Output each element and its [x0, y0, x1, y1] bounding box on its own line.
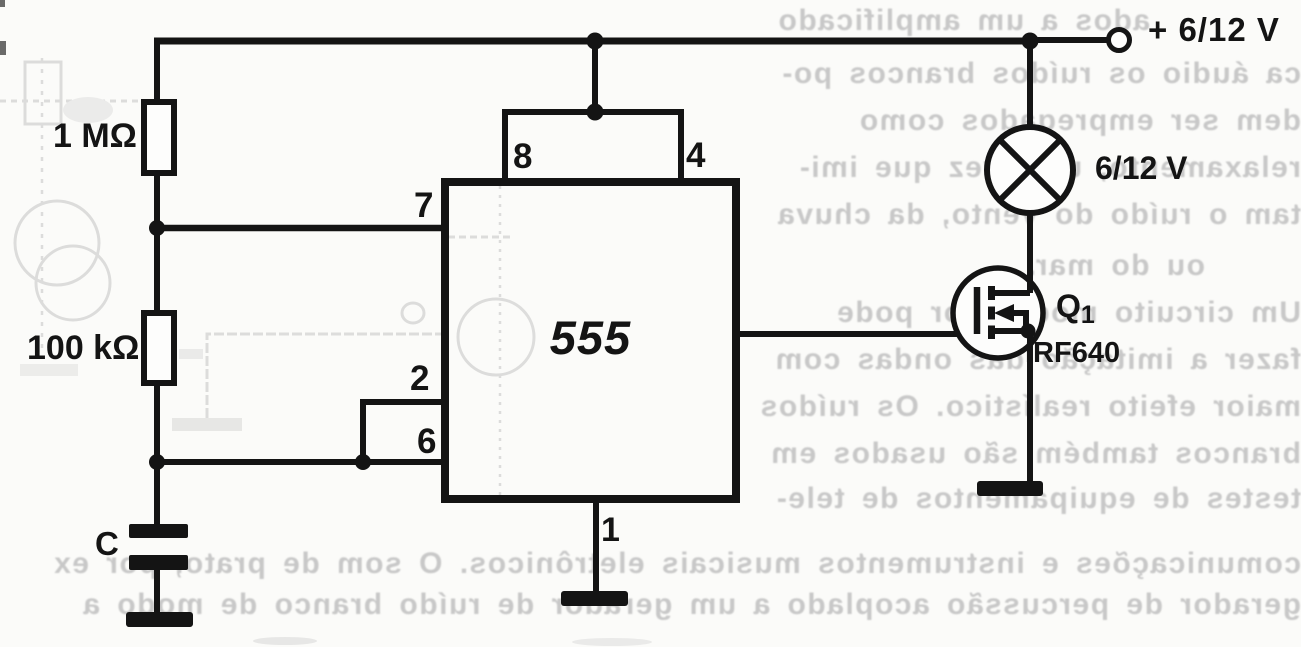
capacitor-plate: [129, 524, 188, 538]
supply-terminal-circle: [1109, 30, 1130, 51]
transistor-part-label: IRF640: [1025, 339, 1120, 368]
lamp-voltage-label: 6/12 V: [1095, 152, 1188, 184]
pin-4-label: 4: [686, 138, 705, 173]
ground-symbol-capacitor: [126, 612, 193, 627]
junction-dot: [587, 104, 604, 121]
pin-6-label: 6: [417, 424, 436, 459]
resistor-100kohm-symbol: [144, 313, 174, 383]
bleed-blob: [572, 638, 652, 646]
junction-dot: [149, 220, 165, 236]
transistor-ref-label: Q1: [1056, 290, 1095, 328]
bleed-blob: [253, 637, 317, 645]
lamp-symbol: [987, 127, 1073, 213]
capacitor-plate: [129, 555, 188, 570]
pin-1-label: 1: [601, 513, 620, 547]
ground-symbol-mosfet: [977, 481, 1043, 496]
page-edge-mark: [0, 0, 5, 7]
capacitor-label: C: [95, 527, 119, 560]
capacitor-symbol: [129, 524, 188, 570]
pin-8-label: 8: [513, 139, 532, 174]
junction-dot: [1022, 33, 1039, 50]
resistor-2-label: 100 kΩ: [27, 331, 139, 365]
transistor-ref: Q: [1056, 288, 1081, 324]
junction-dot: [355, 454, 371, 470]
junction-dot: [587, 33, 604, 50]
bleed-blob: [402, 303, 424, 323]
ic-555-label: 555: [441, 314, 740, 361]
page-edge-mark: [0, 41, 6, 55]
pin-2-label: 2: [410, 361, 429, 396]
page-edge-marks: [0, 0, 6, 55]
power-rail-label: + 6/12 V: [1148, 13, 1280, 46]
junction-dot: [149, 454, 165, 470]
ground-symbol-ic: [561, 591, 628, 606]
pin-7-label: 7: [414, 188, 433, 223]
resistor-1mohm-symbol: [144, 102, 174, 173]
bleed-circle-ghost: [15, 201, 99, 285]
transistor-ref-sub: 1: [1081, 301, 1095, 329]
bleed-blob: [179, 349, 203, 359]
bleed-line: [207, 334, 441, 418]
schematic-scan-page: ados a um amplificado ca áudio os ruídos…: [0, 0, 1301, 647]
resistor-1-label: 1 MΩ: [53, 119, 137, 153]
bleed-blob: [172, 418, 242, 431]
